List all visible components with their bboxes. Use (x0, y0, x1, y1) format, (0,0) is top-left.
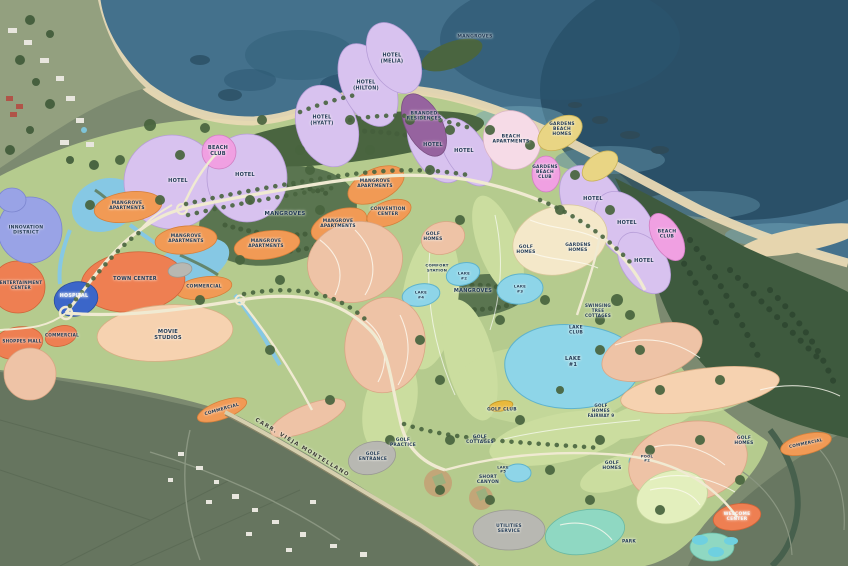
map-canvas (0, 0, 848, 566)
master-plan-map: MANGROVESHOTEL (MELIA)HOTEL (HILTON)HOTE… (0, 0, 848, 566)
parcel-homes-southwest (4, 348, 56, 400)
parcel-gardens-beach-club (532, 156, 560, 192)
parcel-utilities-service (473, 510, 545, 550)
parcel-innovation-district-b (0, 188, 26, 212)
